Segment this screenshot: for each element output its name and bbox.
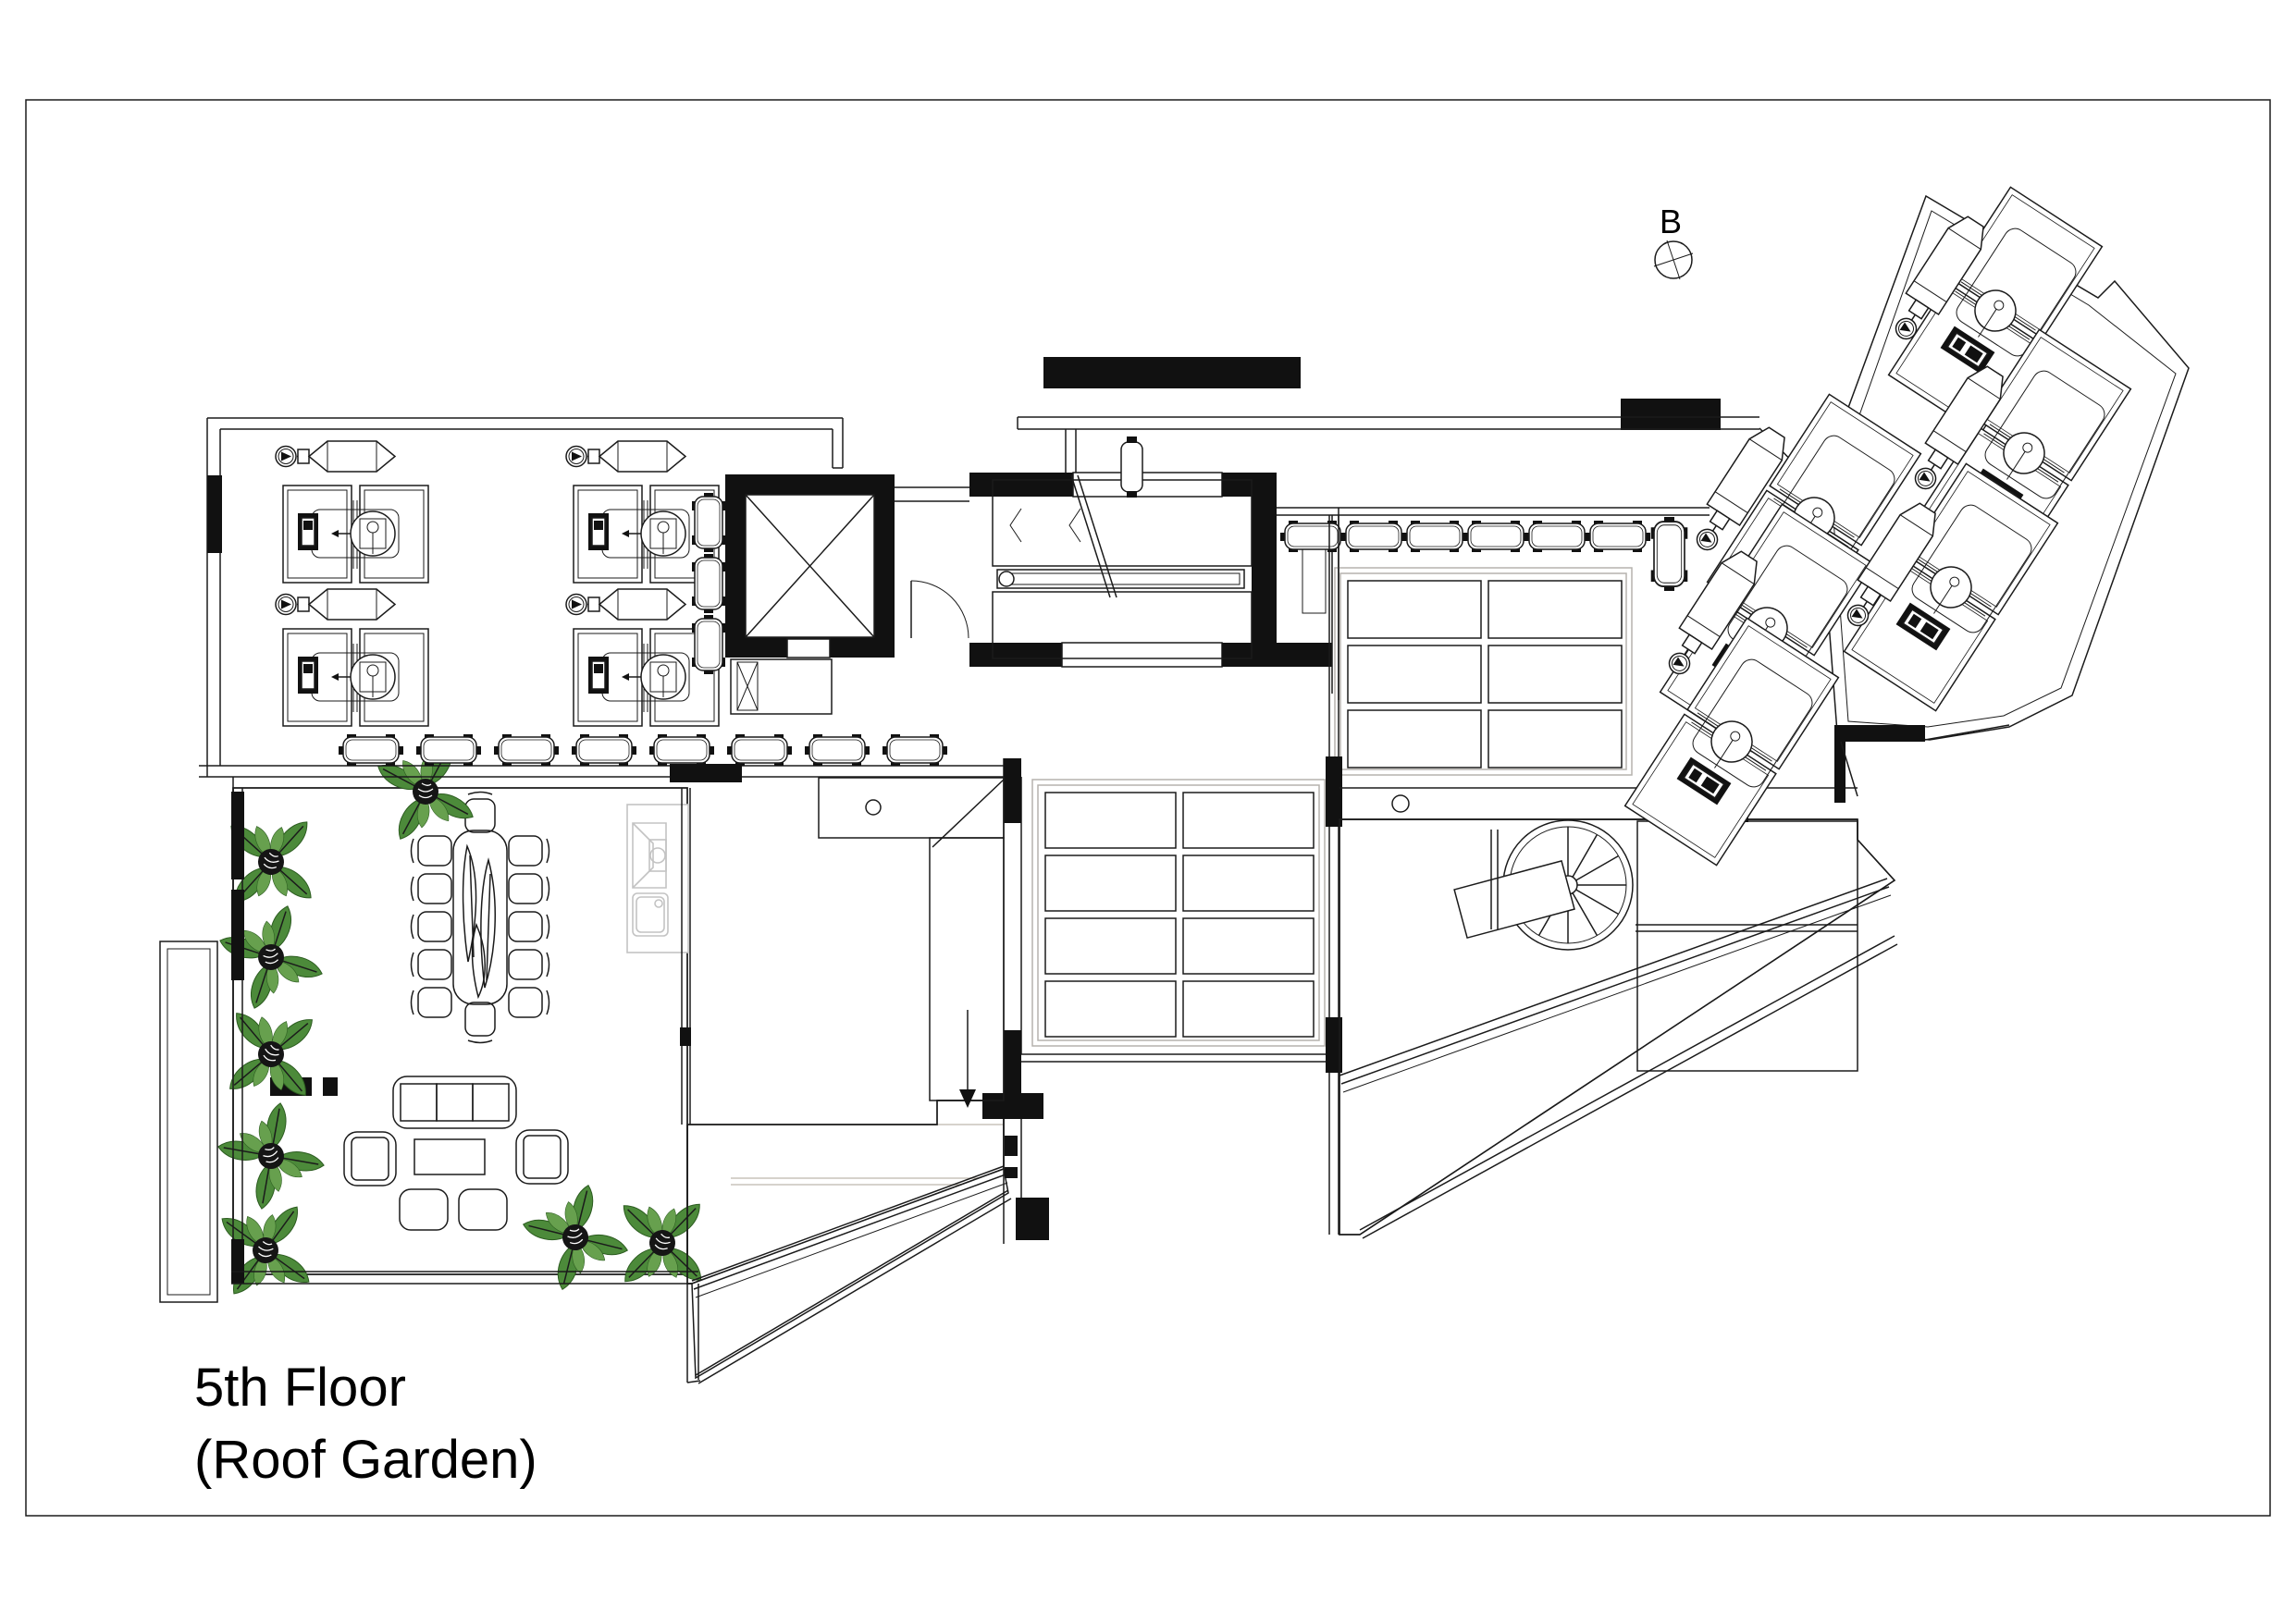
dining-table xyxy=(453,830,507,1004)
section-marker-b: B xyxy=(1654,203,1693,279)
elevator-lower-shaft xyxy=(731,659,832,714)
canopy-capsule xyxy=(1121,436,1142,498)
dining-chair xyxy=(509,988,549,1017)
stair-handrail xyxy=(997,570,1244,588)
potted-plant xyxy=(202,982,339,1125)
condenser-shelf-row xyxy=(339,734,947,766)
plan-title-line2: (Roof Garden) xyxy=(194,1430,537,1490)
roof-garden-terrace xyxy=(233,788,1004,1274)
potted-plant xyxy=(204,1086,338,1225)
walkway-right-wall xyxy=(982,1093,1049,1244)
door-swing xyxy=(911,581,969,638)
side-capsule xyxy=(1651,517,1688,591)
skylight-louver-lower xyxy=(1004,515,1342,1235)
louver-capsule-row xyxy=(1280,521,1650,552)
sloped-walkway xyxy=(687,1093,1049,1383)
elevator-side-tanks xyxy=(692,493,725,674)
refrigerant-tank xyxy=(276,589,395,620)
coffee-table xyxy=(414,1139,485,1174)
equipment-wing xyxy=(1625,187,2189,865)
dining-chair xyxy=(412,836,452,866)
elevator-core xyxy=(692,474,969,714)
hvac-unit-pair xyxy=(283,486,428,583)
hvac-unit-pair xyxy=(283,629,428,726)
refrigerant-tank xyxy=(276,441,395,472)
lounge-set xyxy=(344,1076,568,1230)
floor-block xyxy=(323,1077,338,1096)
ottoman xyxy=(459,1189,507,1230)
floor-plan-page: B 5th Floor (Roof Garden) xyxy=(0,0,2296,1623)
dining-chair xyxy=(509,874,549,904)
terrace-railing xyxy=(1339,879,1897,1238)
dining-chair xyxy=(465,1002,495,1043)
plan-title-line1: 5th Floor xyxy=(194,1358,406,1418)
potted-plant xyxy=(210,892,331,1022)
kitchenette xyxy=(627,805,688,953)
section-marker-label: B xyxy=(1660,203,1682,240)
dining-chair xyxy=(412,874,452,904)
refrigerant-tank xyxy=(566,441,685,472)
dining-set xyxy=(412,793,549,1043)
dining-chair xyxy=(412,950,452,979)
tiled-terrace xyxy=(1339,788,1897,1238)
skylight-louver-upper xyxy=(1277,508,1710,775)
left-balcony-ledge xyxy=(160,941,217,1302)
floor-plan-drawing: B 5th Floor (Roof Garden) xyxy=(0,0,2296,1623)
ottoman xyxy=(400,1189,448,1230)
plan-title: 5th Floor (Roof Garden) xyxy=(194,1358,537,1490)
potted-plant xyxy=(207,794,335,929)
dining-chair xyxy=(509,836,549,866)
dining-chair xyxy=(412,988,452,1017)
roof-canopy-edge xyxy=(1018,357,1819,498)
main-staircase xyxy=(969,473,1339,700)
refrigerant-tank xyxy=(566,589,685,620)
dining-chair xyxy=(509,950,549,979)
garden-down-stair xyxy=(819,778,1004,1108)
dining-chair xyxy=(412,912,452,941)
spiral-stair xyxy=(1454,820,1633,950)
dining-chair xyxy=(509,912,549,941)
